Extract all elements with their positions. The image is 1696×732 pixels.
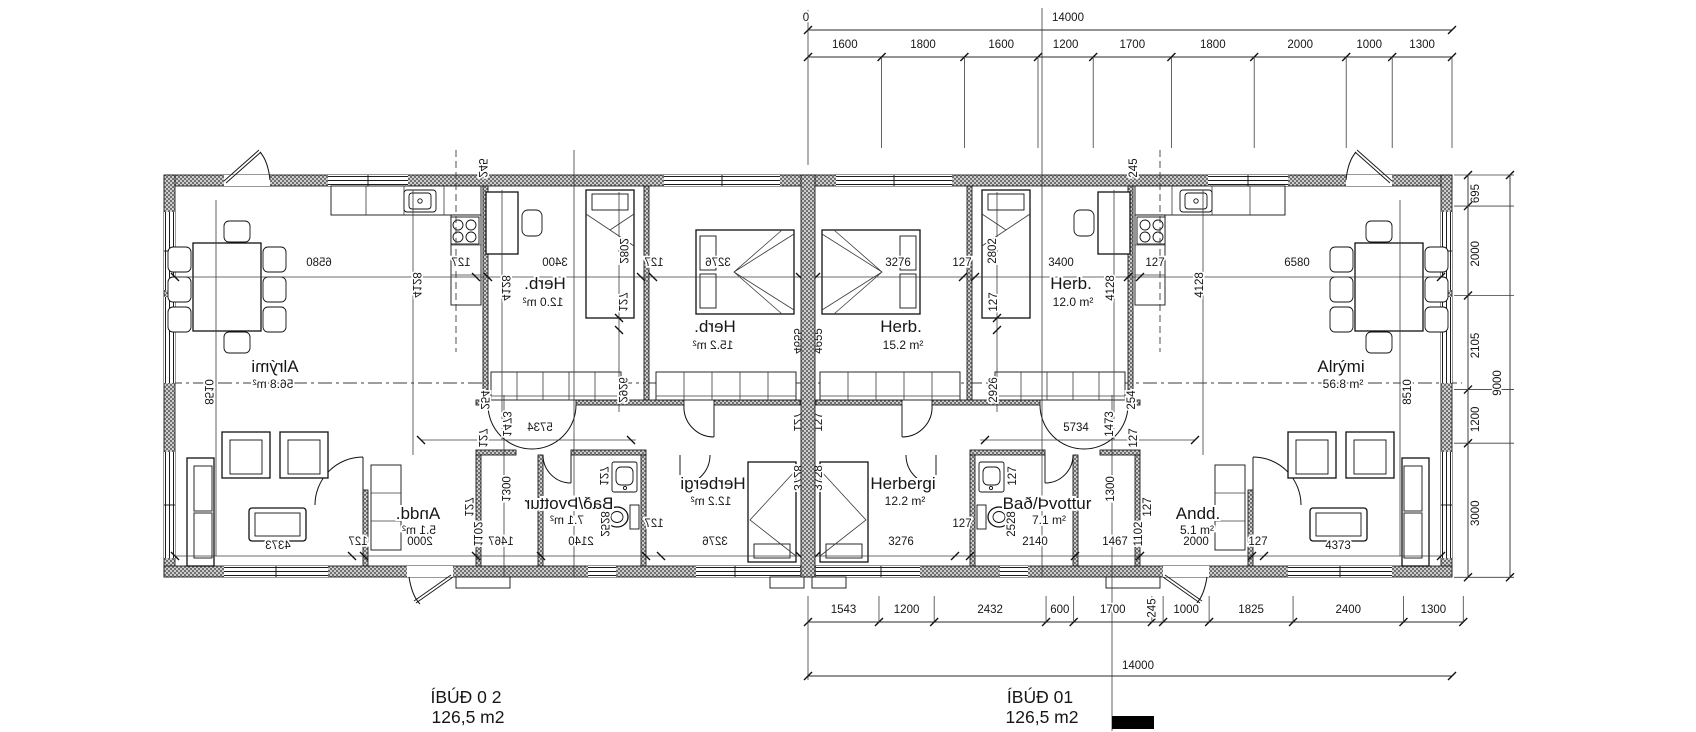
dim-label: 2000	[1287, 39, 1313, 51]
dim-label: Bað/Þvottur	[1003, 494, 1092, 513]
dim-label: 1700	[1120, 39, 1146, 51]
dim-label: 127	[988, 292, 1000, 311]
floor-plan-sheet: 3276127340012765805734327612721401467200…	[0, 0, 1696, 732]
dim-label: 1473	[1104, 411, 1116, 437]
dim-label: 1000	[1173, 604, 1199, 616]
dim-label: 2528	[1006, 511, 1018, 537]
dim-label: 3000	[1470, 500, 1482, 526]
bottom-chain-overall-label: 14000	[1122, 660, 1154, 672]
dim-label: 4128	[1194, 272, 1206, 298]
top-chain-origin-label: 0	[803, 12, 809, 24]
dim-label: 4373	[1325, 540, 1351, 552]
dim-label: Herb.	[880, 317, 922, 336]
dining-table	[1330, 221, 1448, 353]
bed-herbergi	[820, 462, 868, 562]
dim-label: 1300	[1421, 604, 1447, 616]
dim-label: 127	[1142, 497, 1154, 516]
dim-label: 127	[1128, 428, 1140, 447]
dim-label: 2000	[1470, 241, 1482, 267]
dim-label: Herbergi	[870, 474, 935, 493]
stove	[1137, 217, 1165, 244]
dim-label: 127	[1007, 466, 1019, 485]
dim-label: Andd.	[1176, 504, 1220, 523]
dim-label: 127	[952, 518, 971, 530]
unit-right-area: 126,5 m2	[1006, 707, 1079, 727]
dim-label: 12.0 m²	[1053, 295, 1094, 309]
double-bed	[822, 230, 920, 314]
top-dimension-chain: 160018001600120017001800200010001300	[804, 10, 1456, 165]
dim-label: 127	[1248, 536, 1267, 548]
dim-label: 1700	[1100, 604, 1126, 616]
entrance-step	[1106, 577, 1160, 588]
party-wall	[801, 175, 815, 577]
top-chain-overall-label: 14000	[1052, 12, 1084, 24]
sofa	[1402, 458, 1429, 566]
unit-right-name: ÍBÚÐ 01	[1007, 686, 1073, 707]
dim-label: 1543	[831, 604, 857, 616]
dim-label: 1800	[910, 39, 936, 51]
dim-label: 56.8 m²	[1323, 377, 1364, 391]
right-dimension-chain: 6952000210512003000	[1454, 171, 1514, 581]
section-marker-bar	[1112, 716, 1154, 729]
apartment-right: 3276127340012765805734327612721401467200…	[801, 150, 1452, 604]
dim-label: 2926	[988, 377, 1000, 403]
floor-plan-drawing: 3276127340012765805734327612721401467200…	[0, 0, 1696, 732]
dim-label: 1600	[988, 39, 1014, 51]
dim-label: 695	[1470, 184, 1482, 203]
dim-label: 2432	[977, 604, 1003, 616]
dim-label: 8510	[1402, 379, 1414, 405]
dim-label: 5.1 m²	[1180, 523, 1214, 537]
dim-label: 3276	[885, 257, 911, 269]
dim-label: 254	[1126, 390, 1138, 410]
dim-label: 15.2 m²	[883, 338, 924, 352]
dim-label: 1300	[1105, 476, 1117, 502]
dim-label: Alrými	[1317, 357, 1364, 376]
unit-left-area: 126,5 m2	[432, 707, 505, 727]
dim-label: 2140	[1022, 536, 1048, 548]
armchairs	[1288, 432, 1394, 478]
dim-label: 1200	[1470, 407, 1482, 433]
dim-label: 1300	[1409, 39, 1435, 51]
dim-label: 1600	[832, 39, 858, 51]
right-chain-overall-label: 9000	[1492, 370, 1504, 396]
entrance-door-top	[1346, 150, 1392, 186]
dim-label: 7.1 m²	[1032, 513, 1066, 527]
dim-label: 600	[1050, 604, 1069, 616]
dim-label: 5734	[1063, 422, 1089, 434]
dim-label: 127	[1145, 257, 1164, 269]
dim-label: 2400	[1335, 604, 1361, 616]
dim-label: 1800	[1200, 39, 1226, 51]
dim-label: 1000	[1356, 39, 1382, 51]
dim-label: 12.2 m²	[885, 494, 926, 508]
dim-label: 3400	[1048, 257, 1074, 269]
bathroom-sink	[979, 462, 1004, 492]
desk-and-chair	[1074, 192, 1130, 254]
coffee-table	[1310, 508, 1367, 541]
apartment-left	[164, 150, 815, 604]
dim-label: 1825	[1238, 604, 1264, 616]
dim-label: 4128	[1105, 275, 1117, 301]
dim-label: 6580	[1284, 257, 1310, 269]
dim-label: 1467	[1102, 536, 1128, 548]
dim-label: 245	[1128, 158, 1140, 177]
dim-label: 1200	[894, 604, 920, 616]
unit-left-name: ÍBÚÐ 0 2	[431, 686, 502, 707]
dim-label: 2802	[987, 238, 999, 264]
dim-label: 2105	[1470, 333, 1482, 359]
dim-label: 3276	[888, 536, 914, 548]
dim-label: 2000	[1183, 536, 1209, 548]
dim-label: 1200	[1053, 39, 1079, 51]
dim-label: 245	[1146, 598, 1158, 617]
dim-label: 127	[952, 257, 971, 269]
dim-label: Herb.	[1050, 274, 1092, 293]
dim-label: 1102	[1133, 522, 1145, 547]
